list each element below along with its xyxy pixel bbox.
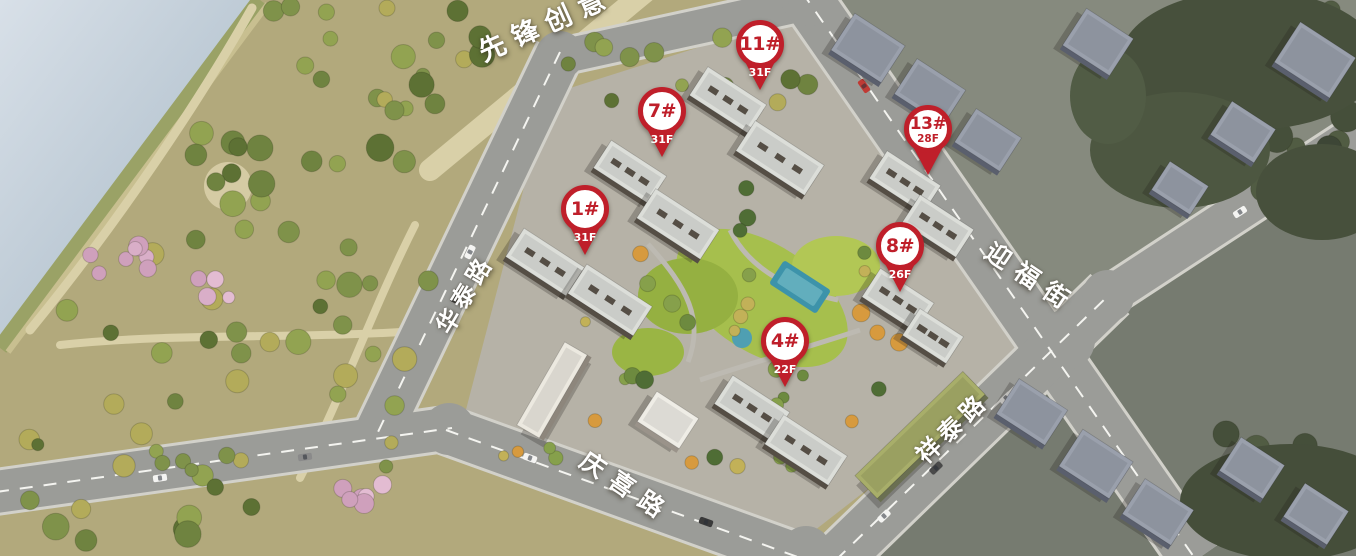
pin-floor-count: 31F xyxy=(732,66,788,79)
building-pin-8[interactable]: 8# 26F xyxy=(872,222,928,292)
building-pin-4[interactable]: 4# 22F xyxy=(757,317,813,387)
aerial-rendering xyxy=(0,0,1356,556)
pin-head: 4# xyxy=(761,317,809,365)
pin-building-number: 1# xyxy=(571,198,599,220)
pin-building-number: 4# xyxy=(771,330,799,352)
pin-building-number: 8# xyxy=(886,235,914,257)
building-pin-7[interactable]: 7# 31F xyxy=(634,87,690,157)
building-pin-11[interactable]: 11# 31F xyxy=(732,20,788,90)
pin-building-number: 7# xyxy=(648,100,676,122)
pin-floor-count: 28F xyxy=(900,133,956,145)
pin-floor-count: 31F xyxy=(557,231,613,244)
pin-head: 13# xyxy=(904,105,952,153)
building-pin-13[interactable]: 13# 28F xyxy=(900,105,956,175)
pin-building-number: 13# xyxy=(910,114,946,134)
pin-head: 8# xyxy=(876,222,924,270)
pin-head: 1# xyxy=(561,185,609,233)
pin-floor-count: 22F xyxy=(757,363,813,376)
pin-head: 11# xyxy=(736,20,784,68)
pin-head: 7# xyxy=(638,87,686,135)
pin-floor-count: 31F xyxy=(634,133,690,146)
pin-building-number: 11# xyxy=(740,33,781,55)
pin-floor-count: 26F xyxy=(872,268,928,281)
building-pin-1[interactable]: 1# 31F xyxy=(557,185,613,255)
site-plan-map: 先锋创意 华泰路 迎福街 祥泰路 庆喜路 1# 31F 7# 31F 11# 3… xyxy=(0,0,1356,556)
